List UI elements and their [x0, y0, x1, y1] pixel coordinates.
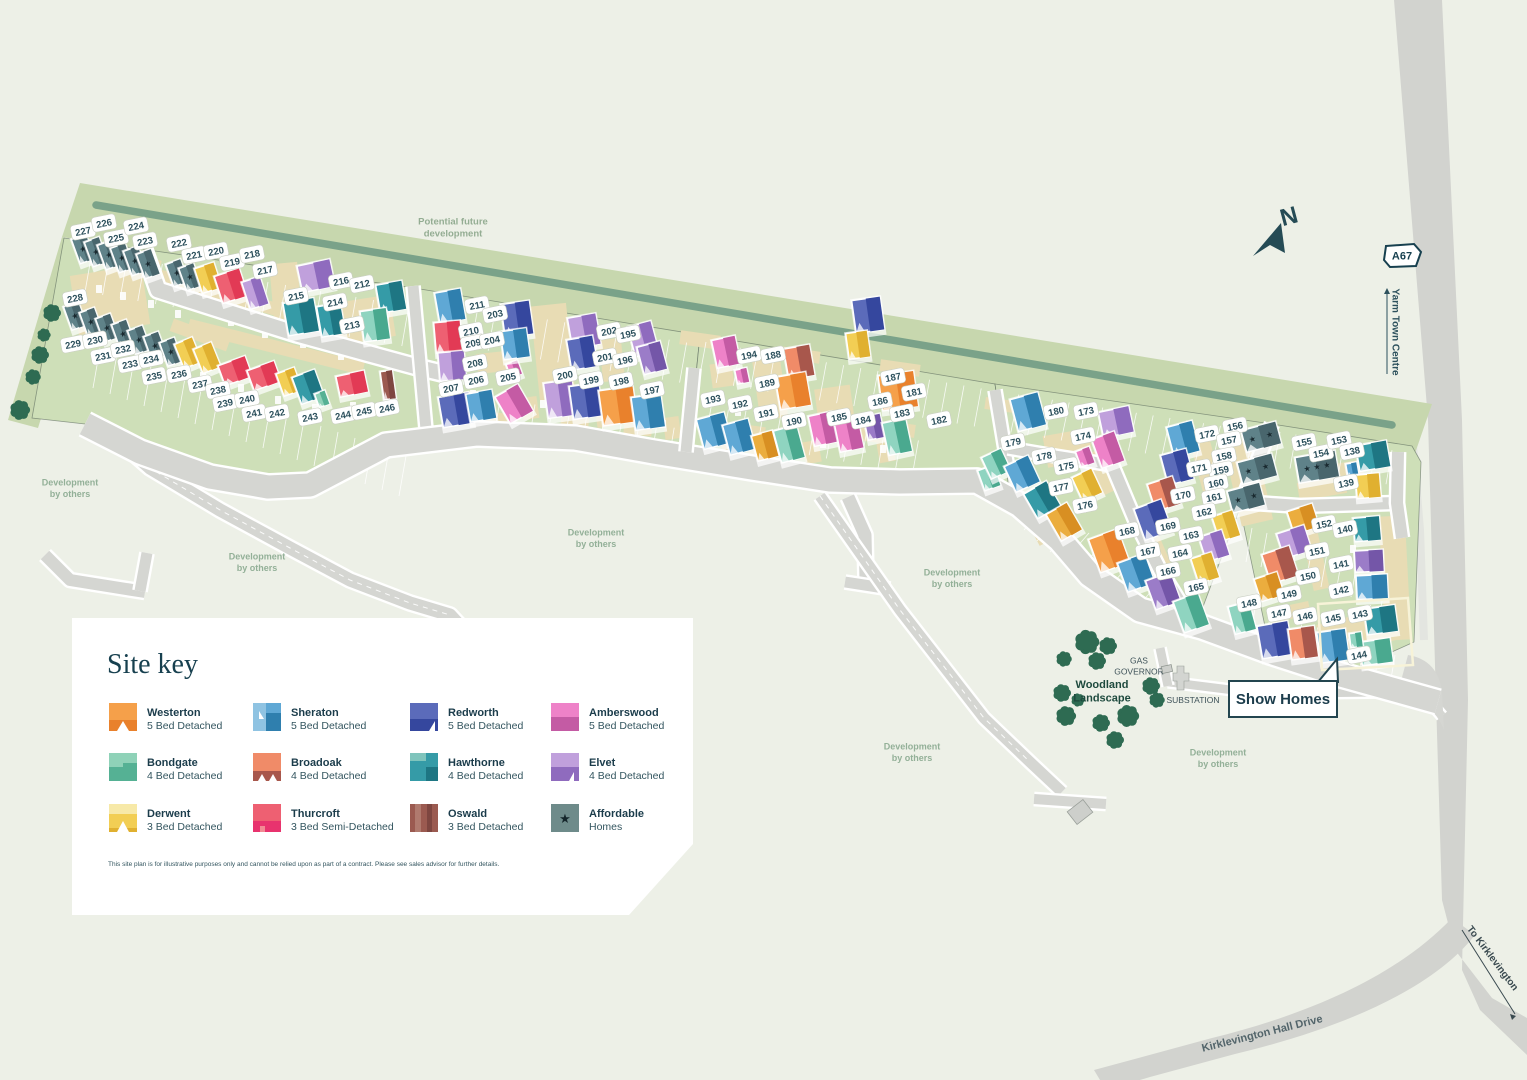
svg-text:Oswald: Oswald — [448, 808, 487, 820]
svg-text:Development: Development — [42, 478, 99, 488]
svg-text:This site plan is for illustra: This site plan is for illustrative purpo… — [108, 861, 499, 868]
svg-text:GOVERNOR: GOVERNOR — [1114, 666, 1164, 676]
svg-text:Thurcroft: Thurcroft — [291, 808, 340, 820]
svg-text:Elvet: Elvet — [589, 757, 616, 769]
svg-text:Development: Development — [1190, 748, 1247, 758]
svg-text:GAS: GAS — [1130, 656, 1148, 666]
svg-text:★: ★ — [559, 811, 571, 826]
svg-text:4 Bed Detached: 4 Bed Detached — [147, 770, 222, 782]
svg-text:development: development — [424, 228, 483, 239]
svg-text:by others: by others — [932, 579, 973, 589]
svg-text:by others: by others — [50, 489, 91, 499]
svg-text:Broadoak: Broadoak — [291, 757, 343, 769]
svg-text:4 Bed Detached: 4 Bed Detached — [448, 770, 523, 782]
svg-text:3 Bed Semi-Detached: 3 Bed Semi-Detached — [291, 821, 394, 833]
svg-text:by others: by others — [1198, 759, 1239, 769]
svg-text:4 Bed Detached: 4 Bed Detached — [589, 770, 664, 782]
svg-text:Development: Development — [884, 742, 941, 752]
svg-text:A67: A67 — [1392, 251, 1412, 263]
svg-text:★: ★ — [1323, 460, 1332, 470]
svg-text:by others: by others — [892, 753, 933, 763]
svg-text:3 Bed Detached: 3 Bed Detached — [147, 821, 222, 833]
svg-text:by others: by others — [237, 563, 278, 573]
svg-text:SUBSTATION: SUBSTATION — [1166, 695, 1219, 705]
svg-text:Derwent: Derwent — [147, 808, 191, 820]
svg-text:Hawthorne: Hawthorne — [448, 757, 505, 769]
svg-text:Amberswood: Amberswood — [589, 707, 659, 719]
svg-text:★: ★ — [1303, 464, 1312, 474]
svg-text:Landscape: Landscape — [1073, 693, 1130, 705]
svg-text:4 Bed Detached: 4 Bed Detached — [291, 770, 366, 782]
svg-text:5 Bed Detached: 5 Bed Detached — [291, 720, 366, 732]
svg-text:Yarm Town Centre: Yarm Town Centre — [1390, 288, 1401, 375]
svg-text:Redworth: Redworth — [448, 707, 499, 719]
svg-text:Woodland: Woodland — [1076, 679, 1129, 691]
svg-text:Affordable: Affordable — [589, 808, 644, 820]
svg-text:Development: Development — [229, 552, 286, 562]
svg-text:5 Bed Detached: 5 Bed Detached — [589, 720, 664, 732]
svg-text:5 Bed Detached: 5 Bed Detached — [147, 720, 222, 732]
svg-text:★: ★ — [1313, 462, 1322, 472]
svg-text:3 Bed Detached: 3 Bed Detached — [448, 821, 523, 833]
svg-text:Show Homes: Show Homes — [1236, 691, 1330, 708]
svg-text:by others: by others — [576, 539, 617, 549]
svg-text:Site key: Site key — [107, 649, 198, 680]
svg-text:Development: Development — [568, 528, 625, 538]
svg-text:5 Bed Detached: 5 Bed Detached — [448, 720, 523, 732]
svg-text:Bondgate: Bondgate — [147, 757, 198, 769]
svg-text:Development: Development — [924, 568, 981, 578]
svg-text:Sheraton: Sheraton — [291, 707, 339, 719]
svg-text:Potential future: Potential future — [418, 216, 488, 227]
svg-text:Westerton: Westerton — [147, 707, 201, 719]
svg-text:Homes: Homes — [589, 821, 622, 833]
